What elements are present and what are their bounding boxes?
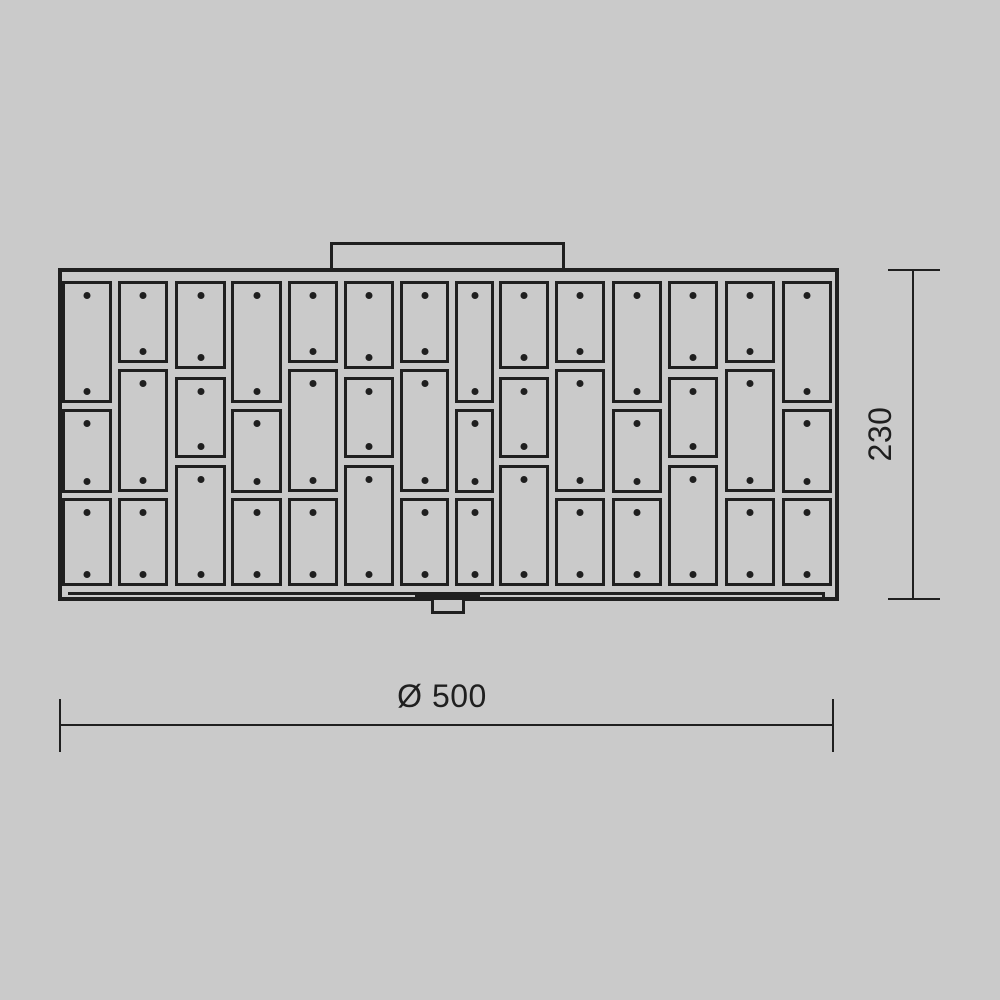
- screw-dot: [804, 388, 811, 395]
- screw-dot: [577, 292, 584, 299]
- panel-tile-c13-r1: [725, 281, 775, 363]
- screw-dot: [421, 509, 428, 516]
- screw-dot: [804, 420, 811, 427]
- screw-dot: [421, 477, 428, 484]
- screw-dot: [366, 354, 373, 361]
- screw-dot: [140, 571, 147, 578]
- screw-dot: [634, 420, 641, 427]
- screw-dot: [471, 292, 478, 299]
- screw-dot: [84, 509, 91, 516]
- screw-dot: [471, 388, 478, 395]
- screw-dot: [310, 571, 317, 578]
- screw-dot: [310, 477, 317, 484]
- panel-tile-c2-r3: [118, 498, 168, 586]
- panel-tile-c13-r3: [725, 498, 775, 586]
- panel-tile-c8-r2: [455, 409, 494, 493]
- height-dimension-cap-bottom: [888, 598, 940, 601]
- screw-dot: [521, 476, 528, 483]
- panel-tile-c9-r3: [499, 465, 549, 586]
- screw-dot: [747, 348, 754, 355]
- width-dimension-line: [59, 724, 833, 727]
- screw-dot: [84, 478, 91, 485]
- screw-dot: [747, 380, 754, 387]
- panel-tile-c10-r3: [555, 498, 605, 586]
- screw-dot: [577, 348, 584, 355]
- panel-tile-c7-r3: [400, 498, 449, 586]
- panel-tile-c4-r2: [231, 409, 282, 493]
- screw-dot: [140, 348, 147, 355]
- screw-dot: [747, 509, 754, 516]
- panel-tile-c5-r1: [288, 281, 338, 363]
- screw-dot: [253, 478, 260, 485]
- panel-tile-c6-r3: [344, 465, 394, 586]
- panel-tile-c6-r2: [344, 377, 394, 458]
- screw-dot: [366, 476, 373, 483]
- screw-dot: [421, 348, 428, 355]
- panel-tile-c12-r2: [668, 377, 718, 458]
- panel-tile-c11-r3: [612, 498, 662, 586]
- technical-drawing-canvas: 230 Ø 500: [0, 0, 1000, 1000]
- bottom-stem-nub: [431, 600, 465, 614]
- screw-dot: [634, 478, 641, 485]
- screw-dot: [253, 388, 260, 395]
- panel-tile-c8-r1: [455, 281, 494, 403]
- screw-dot: [84, 571, 91, 578]
- screw-dot: [634, 509, 641, 516]
- screw-dot: [747, 477, 754, 484]
- screw-dot: [690, 388, 697, 395]
- screw-dot: [84, 292, 91, 299]
- screw-dot: [366, 292, 373, 299]
- screw-dot: [804, 571, 811, 578]
- screw-dot: [197, 292, 204, 299]
- screw-dot: [690, 476, 697, 483]
- screw-dot: [747, 571, 754, 578]
- screw-dot: [804, 509, 811, 516]
- panel-tile-c2-r2: [118, 369, 168, 492]
- screw-dot: [634, 388, 641, 395]
- screw-dot: [197, 443, 204, 450]
- screw-dot: [804, 478, 811, 485]
- panel-tile-c5-r3: [288, 498, 338, 586]
- screw-dot: [140, 477, 147, 484]
- screw-dot: [197, 571, 204, 578]
- screw-dot: [690, 443, 697, 450]
- bottom-rim-right-step: [822, 592, 825, 601]
- panel-tile-c6-r1: [344, 281, 394, 369]
- panel-tile-c11-r2: [612, 409, 662, 493]
- screw-dot: [471, 509, 478, 516]
- screw-dot: [310, 509, 317, 516]
- screw-dot: [521, 388, 528, 395]
- panel-tile-c14-r1: [782, 281, 832, 403]
- screw-dot: [197, 388, 204, 395]
- screw-dot: [253, 292, 260, 299]
- screw-dot: [310, 380, 317, 387]
- screw-dot: [471, 571, 478, 578]
- panel-tile-c12-r3: [668, 465, 718, 586]
- panel-tile-c11-r1: [612, 281, 662, 403]
- screw-dot: [521, 571, 528, 578]
- screw-dot: [804, 292, 811, 299]
- height-dimension-cap-top: [888, 269, 940, 272]
- screw-dot: [140, 380, 147, 387]
- panel-tile-c4-r1: [231, 281, 282, 403]
- panel-tile-c1-r1: [62, 281, 112, 403]
- panel-tile-c1-r3: [62, 498, 112, 586]
- screw-dot: [634, 292, 641, 299]
- panel-tile-c9-r2: [499, 377, 549, 458]
- screw-dot: [521, 292, 528, 299]
- screw-dot: [197, 476, 204, 483]
- screw-dot: [253, 420, 260, 427]
- screw-dot: [253, 509, 260, 516]
- screw-dot: [577, 477, 584, 484]
- screw-dot: [421, 571, 428, 578]
- screw-dot: [421, 292, 428, 299]
- screw-dot: [84, 388, 91, 395]
- panel-tile-c3-r1: [175, 281, 226, 369]
- panel-tile-c7-r1: [400, 281, 449, 363]
- screw-dot: [421, 380, 428, 387]
- width-dimension-cap-right: [832, 699, 835, 752]
- width-dimension-cap-left: [59, 699, 62, 752]
- height-dimension-line: [912, 270, 915, 600]
- screw-dot: [634, 571, 641, 578]
- panel-tile-c7-r2: [400, 369, 449, 492]
- panel-tile-c3-r2: [175, 377, 226, 458]
- screw-dot: [310, 292, 317, 299]
- screw-dot: [140, 509, 147, 516]
- panel-tile-c2-r1: [118, 281, 168, 363]
- screw-dot: [471, 420, 478, 427]
- screw-dot: [521, 443, 528, 450]
- panel-tile-c4-r3: [231, 498, 282, 586]
- screw-dot: [577, 509, 584, 516]
- panel-tile-c12-r1: [668, 281, 718, 369]
- screw-dot: [577, 380, 584, 387]
- screw-dot: [310, 348, 317, 355]
- panel-tile-c14-r3: [782, 498, 832, 586]
- screw-dot: [366, 571, 373, 578]
- screw-dot: [84, 420, 91, 427]
- panel-tile-c3-r3: [175, 465, 226, 586]
- panel-tile-c10-r2: [555, 369, 605, 492]
- screw-dot: [140, 292, 147, 299]
- width-dimension-label: Ø 500: [397, 680, 487, 712]
- screw-dot: [366, 388, 373, 395]
- screw-dot: [747, 292, 754, 299]
- screw-dot: [577, 571, 584, 578]
- screw-dot: [253, 571, 260, 578]
- panel-tile-c13-r2: [725, 369, 775, 492]
- panel-tile-c10-r1: [555, 281, 605, 363]
- height-dimension-label: 230: [864, 407, 896, 462]
- screw-dot: [690, 354, 697, 361]
- panel-tile-c8-r3: [455, 498, 494, 586]
- screw-dot: [471, 478, 478, 485]
- screw-dot: [366, 443, 373, 450]
- panel-grid: [0, 0, 1000, 1000]
- panel-tile-c9-r1: [499, 281, 549, 369]
- panel-tile-c1-r2: [62, 409, 112, 493]
- panel-tile-c5-r2: [288, 369, 338, 492]
- screw-dot: [197, 354, 204, 361]
- screw-dot: [690, 571, 697, 578]
- panel-tile-c14-r2: [782, 409, 832, 493]
- screw-dot: [690, 292, 697, 299]
- screw-dot: [521, 354, 528, 361]
